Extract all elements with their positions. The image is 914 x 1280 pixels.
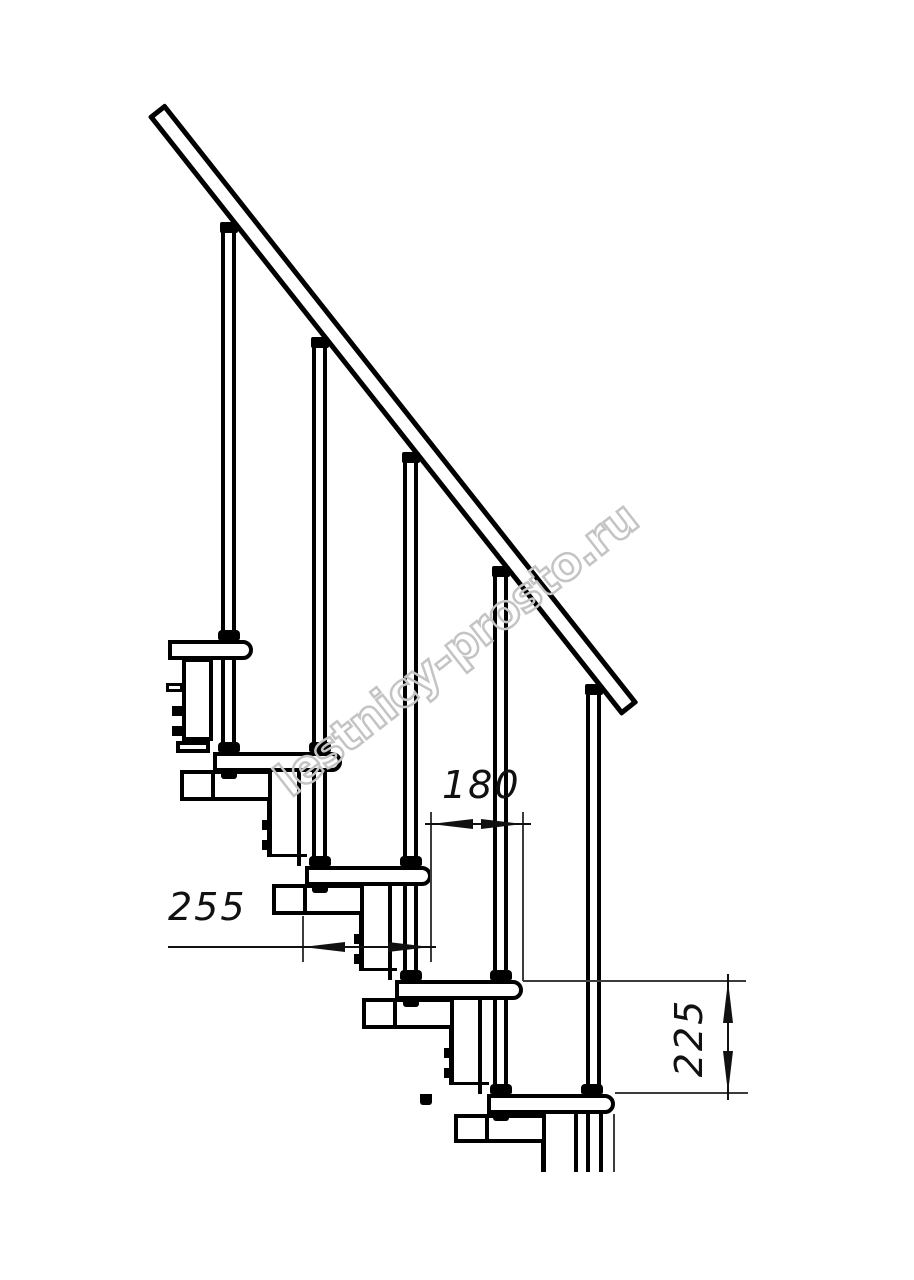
baluster-rail-connector xyxy=(311,337,329,348)
module-bolt xyxy=(262,820,272,830)
baluster-rail-connector xyxy=(220,222,238,233)
dimension-value-riser-height: 225 xyxy=(669,998,709,1078)
module-shelf xyxy=(267,854,307,857)
support-rod xyxy=(493,1000,508,1094)
rod-landing-connector xyxy=(218,742,240,752)
module-bolt xyxy=(444,1068,454,1078)
module-bolt xyxy=(444,1048,454,1058)
baluster-rail-connector xyxy=(402,452,420,463)
tread-5 xyxy=(487,1094,615,1114)
rod-landing-connector xyxy=(490,1084,512,1094)
rod-landing-connector xyxy=(309,856,331,866)
module-shelf xyxy=(449,1082,489,1085)
module-divider xyxy=(485,1114,489,1143)
baluster-tread-connector xyxy=(400,856,422,866)
module-shelf xyxy=(359,968,397,971)
module-divider xyxy=(393,998,397,1029)
extension-line xyxy=(302,916,304,962)
arrow-right-icon xyxy=(481,819,523,829)
module-divider xyxy=(211,770,215,801)
module-divider xyxy=(303,884,307,915)
tread-bolt-nut xyxy=(221,771,237,779)
module-bolt xyxy=(262,840,272,850)
edge-line xyxy=(613,1114,615,1172)
baluster xyxy=(586,691,601,1094)
baluster-rail-connector xyxy=(585,684,603,695)
staircase-drawing: 180 255 225 lestnicy-prosto.ru xyxy=(0,0,914,1280)
support-rod-line xyxy=(388,886,392,980)
arrow-right-icon xyxy=(388,942,430,952)
tread-4 xyxy=(395,980,523,1000)
module-foot xyxy=(176,741,210,753)
baluster-tread-connector xyxy=(581,1084,603,1094)
arrow-left-icon xyxy=(431,819,473,829)
rod-landing-connector xyxy=(400,970,422,980)
baluster-tread-connector xyxy=(490,970,512,980)
arrow-up-icon xyxy=(723,981,733,1023)
support-rod xyxy=(403,886,418,980)
module-bolt xyxy=(172,706,182,716)
extension-line xyxy=(523,980,746,982)
extension-line xyxy=(430,812,432,962)
module-bolt xyxy=(354,934,364,944)
support-rod-line xyxy=(599,1114,603,1172)
support-rod-line xyxy=(574,1114,578,1172)
support-rod-line xyxy=(478,1000,482,1094)
module-bolt xyxy=(172,726,182,736)
tread-3 xyxy=(305,866,432,886)
baluster-tread-connector xyxy=(218,630,240,640)
module-neck xyxy=(541,1143,546,1172)
support-rod xyxy=(221,660,236,752)
dimension-value-step-run: 180 xyxy=(442,763,521,807)
tread-bolt-nut xyxy=(403,999,419,1007)
module-bolt xyxy=(420,1094,432,1105)
baluster xyxy=(221,231,236,640)
tread-1 xyxy=(168,640,253,660)
tread-bolt-nut xyxy=(312,885,328,893)
support-rod-line xyxy=(586,1114,590,1172)
module-body xyxy=(182,658,213,741)
module-tab xyxy=(166,683,183,692)
module-bolt xyxy=(354,954,364,964)
tread-bolt-nut xyxy=(493,1113,509,1121)
dimension-value-tread-depth: 255 xyxy=(168,885,247,929)
baluster xyxy=(312,346,327,752)
arrow-down-icon xyxy=(723,1051,733,1093)
arrow-left-icon xyxy=(303,942,345,952)
extension-line xyxy=(522,812,524,981)
